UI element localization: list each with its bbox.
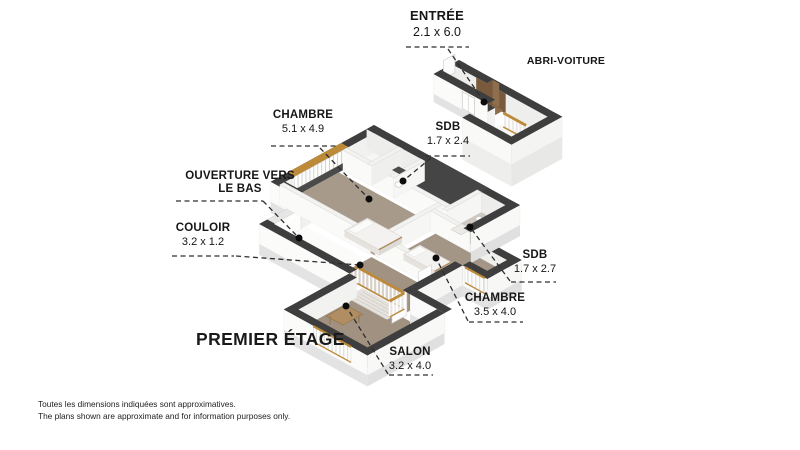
room-name: CHAMBRE [465,292,525,304]
page-title: PREMIER ÉTAGE [196,329,345,350]
label-chambre-2: CHAMBRE3.5 x 4.0 [465,292,525,318]
room-name: CHAMBRE [273,109,333,121]
room-dimensions: 3.5 x 4.0 [465,306,525,318]
label-ouverture: OUVERTURE VERSLE BAS [185,170,295,195]
label-sdb-1: SDB1.7 x 2.4 [427,121,469,147]
label-salon: SALON3.2 x 4.0 [389,346,431,372]
room-name: SDB [427,121,469,133]
room-name: ABRI-VOITURE [527,55,605,67]
disclaimer-line-en: The plans shown are approximate and for … [38,410,290,422]
room-name: SALON [389,346,431,358]
label-chambre-1: CHAMBRE5.1 x 4.9 [273,109,333,135]
room-dimensions: 1.7 x 2.4 [427,135,469,147]
label-entree: ENTRÉE2.1 x 6.0 [410,8,464,39]
annotation-leader-lines [0,0,800,450]
room-name: COULOIR [176,222,230,234]
disclaimer-line-fr: Toutes les dimensions indiquées sont app… [38,398,290,410]
disclaimer-footer: Toutes les dimensions indiquées sont app… [38,398,290,422]
room-dimensions: 3.2 x 4.0 [389,360,431,372]
label-couloir: COULOIR3.2 x 1.2 [176,222,230,248]
room-dimensions: 2.1 x 6.0 [410,25,464,39]
room-dimensions: 1.7 x 2.7 [514,263,556,275]
label-abri-voiture: ABRI-VOITURE [527,55,605,67]
room-dimensions: 5.1 x 4.9 [273,123,333,135]
room-name: OUVERTURE VERS [185,170,295,182]
label-sdb-2: SDB1.7 x 2.7 [514,249,556,275]
room-name: SDB [514,249,556,261]
room-dimensions: 3.2 x 1.2 [176,236,230,248]
floorplan-page: ENTRÉE2.1 x 6.0ABRI-VOITURECHAMBRE5.1 x … [0,0,800,450]
room-name: ENTRÉE [410,8,464,23]
room-name-line2: LE BAS [185,183,295,195]
